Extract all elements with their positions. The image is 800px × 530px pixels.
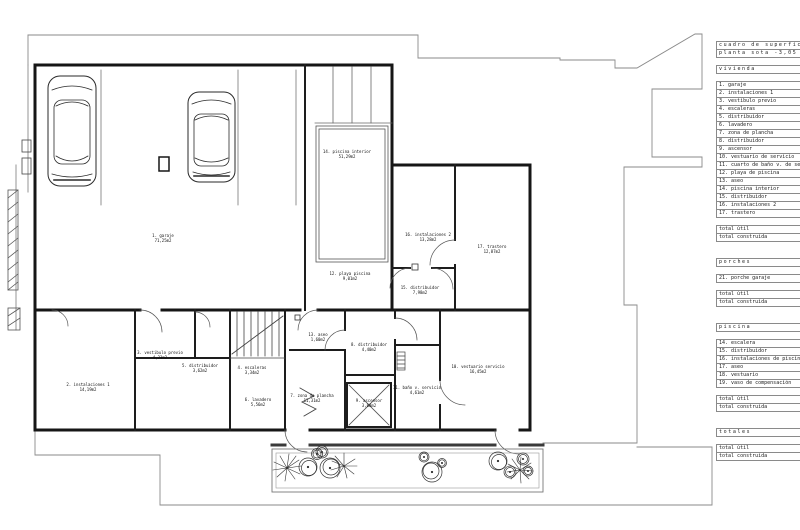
area-table: cuadro de superficiesplanta sota -3,05vi… (716, 42, 800, 478)
table-gap (716, 461, 800, 478)
table-section-header: totales (716, 428, 800, 437)
table-section-header: piscina (716, 323, 800, 332)
table-section-header: porches (716, 258, 800, 267)
room-area: 3,62m2 (193, 368, 208, 373)
table-total-row: total construida (716, 452, 800, 461)
table-total-row: total construida (716, 403, 800, 412)
table-item-row: 16. instalaciones de piscina (716, 355, 800, 364)
table-item-row: 17. trastero (716, 209, 800, 218)
room-area: 71,25m2 (155, 238, 172, 243)
table-item-row: 10. vestuario de servicio (716, 153, 800, 162)
room-area: 12,87m2 (484, 249, 501, 254)
car-icon (188, 92, 235, 182)
staircase (230, 312, 285, 358)
table-item-row: 21. porche garaje (716, 274, 800, 283)
room-area: 16,45m2 (470, 369, 487, 374)
floor-plan-page: { "area_table": { "title_lines": ["cuadr… (0, 0, 800, 530)
room-area: 3,08m2 (362, 403, 377, 408)
room-area: 11,31m2 (304, 398, 321, 403)
parking-divider (101, 70, 296, 205)
exterior-walls (35, 65, 530, 430)
table-item-row: 11. cuarto de baño v. de servicio (716, 161, 800, 170)
hatch-strip (8, 190, 20, 330)
pool-room (315, 67, 392, 262)
column (159, 157, 169, 171)
site-boundary (16, 34, 712, 505)
car-icon (48, 76, 96, 186)
bush-icon (299, 446, 533, 482)
table-total-row: total construida (716, 298, 800, 307)
table-gap (716, 412, 800, 429)
room-area: 4,23m2 (153, 355, 168, 360)
room-area: 1,60m2 (311, 337, 326, 342)
room-area: 3,34m2 (245, 370, 260, 375)
room-area: 4,61m2 (410, 390, 425, 395)
window (22, 140, 31, 174)
table-gap (716, 307, 800, 324)
room-area: 14,19m2 (80, 387, 97, 392)
room-area: 5,56m2 (251, 402, 266, 407)
table-title-row: planta sota -3,05 (716, 49, 800, 58)
plan-svg: 1. garaje 71,25m2 14. piscina interior 5… (0, 0, 800, 530)
pool-basin (316, 126, 388, 262)
table-total-row: total construida (716, 233, 800, 242)
table-gap (716, 242, 800, 259)
pool-lanes (315, 67, 392, 123)
table-item-row: 19. vaso de compensación (716, 379, 800, 388)
door-sill (397, 352, 405, 370)
room-area: 13,28m2 (420, 237, 437, 242)
room-area: 4,40m2 (362, 347, 377, 352)
interior-walls (135, 65, 455, 430)
room-area: 7,98m2 (413, 290, 428, 295)
room-area: 9,01m2 (343, 276, 358, 281)
table-title-row: cuadro de superficies (716, 41, 800, 50)
table-section-header: vivienda (716, 65, 800, 74)
room-area: 51,29m2 (339, 154, 356, 159)
